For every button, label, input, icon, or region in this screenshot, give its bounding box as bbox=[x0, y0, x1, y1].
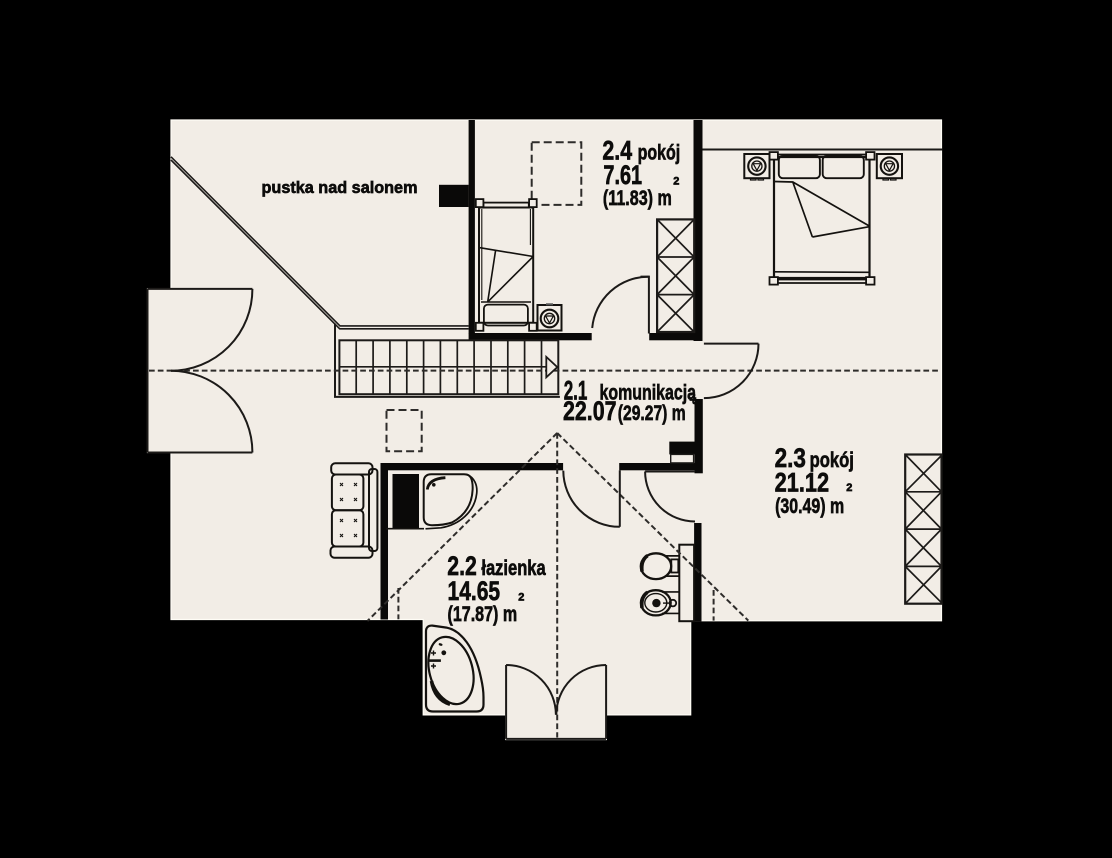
svg-text:2: 2 bbox=[673, 176, 679, 188]
svg-text:(11.83) m: (11.83) m bbox=[603, 186, 672, 210]
svg-text:(17.87) m: (17.87) m bbox=[448, 602, 518, 626]
svg-text:22.07: 22.07 bbox=[563, 396, 617, 426]
svg-text:2: 2 bbox=[846, 482, 852, 494]
svg-text:2: 2 bbox=[518, 592, 524, 604]
svg-text:(30.49) m: (30.49) m bbox=[775, 494, 844, 518]
svg-text:pokój: pokój bbox=[638, 141, 681, 165]
svg-text:2: 2 bbox=[690, 391, 696, 403]
svg-text:21.12: 21.12 bbox=[775, 468, 830, 498]
svg-text:(29.27) m: (29.27) m bbox=[618, 401, 686, 425]
svg-text:pustka nad salonem: pustka nad salonem bbox=[262, 178, 418, 197]
